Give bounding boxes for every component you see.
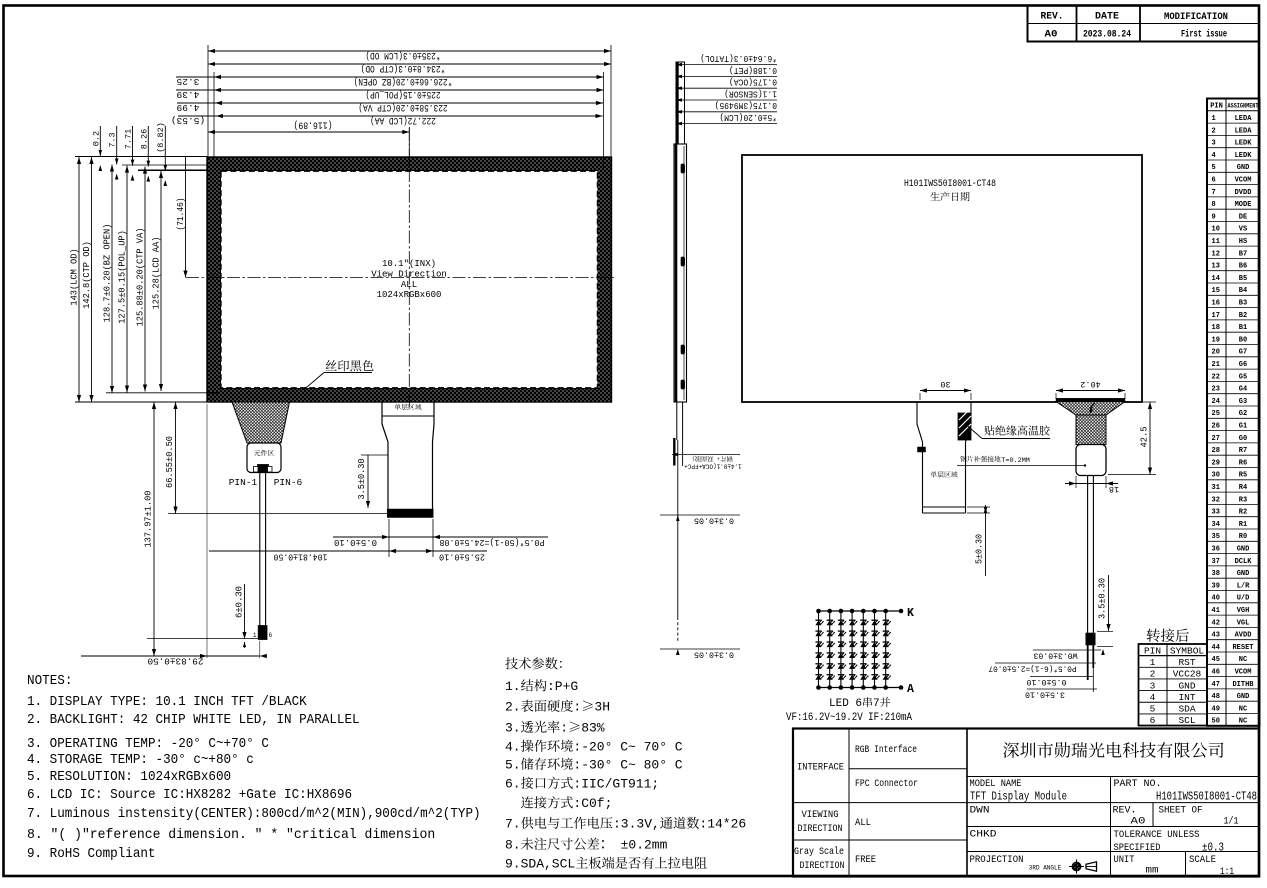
svg-text:3.: 3. (505, 721, 521, 736)
svg-text:B4: B4 (1239, 287, 1247, 295)
svg-text:9. RoHS Compliant: 9. RoHS Compliant (27, 846, 156, 862)
svg-text:NC: NC (1239, 656, 1247, 664)
svg-text:*6.64±0.3(TATOL): *6.64±0.3(TATOL) (700, 53, 777, 63)
svg-text:1/1: 1/1 (1224, 816, 1239, 828)
svg-text:： ±0.2mm: ： ±0.2mm (600, 838, 668, 853)
svg-text:DIRECTION: DIRECTION (800, 860, 845, 872)
svg-text::-20° C~ 70° C: :-20° C~ 70° C (573, 740, 682, 755)
svg-text:*226.66±0.20(BZ OPEN): *226.66±0.20(BZ OPEN) (354, 75, 453, 87)
svg-text:R6: R6 (1239, 459, 1247, 467)
svg-text:LEDA: LEDA (1235, 127, 1253, 135)
svg-text:*235±0.3(LCM OD): *235±0.3(LCM OD) (365, 49, 440, 61)
svg-text:40: 40 (1212, 595, 1220, 603)
svg-text:G4: G4 (1239, 386, 1247, 394)
svg-text:RESET: RESET (1232, 644, 1253, 652)
svg-text:G7: G7 (1239, 349, 1247, 357)
svg-text:6. LCD IC: Source IC:HX8282 +G: 6. LCD IC: Source IC:HX8282 +Gate IC:HX8… (27, 787, 352, 803)
svg-text:27: 27 (1212, 435, 1220, 443)
svg-text:1:1: 1:1 (1220, 866, 1234, 878)
svg-text:0.188(PET): 0.188(PET) (729, 65, 777, 75)
svg-text:1. DISPLAY TYPE: 10.1 INCH TFT: 1. DISPLAY TYPE: 10.1 INCH TFT /BLACK (27, 694, 307, 710)
svg-text:3.5±0.10: 3.5±0.10 (1025, 689, 1065, 699)
svg-text:125.28(LCD AA): 125.28(LCD AA) (150, 237, 161, 310)
svg-text:3.25: 3.25 (176, 76, 199, 87)
svg-text:43: 43 (1212, 632, 1220, 640)
svg-text:3. OPERATING TEMP: -20° C~+70°: 3. OPERATING TEMP: -20° C~+70° C (27, 736, 269, 752)
svg-text:K: K (907, 607, 914, 620)
svg-text:R1: R1 (1239, 521, 1247, 529)
svg-text:A0: A0 (1131, 816, 1146, 828)
svg-text:66.55±0.50: 66.55±0.50 (164, 436, 175, 488)
svg-text::-30° C~ 80° C: :-30° C~ 80° C (573, 758, 682, 773)
svg-text:7.71: 7.71 (123, 129, 133, 149)
svg-text:RGB Interface: RGB Interface (855, 744, 917, 756)
svg-text:LEDK: LEDK (1235, 152, 1253, 160)
svg-text:125.88±0.20(CTP VA): 125.88±0.20(CTP VA) (134, 228, 145, 327)
svg-text:4.39: 4.39 (176, 89, 199, 100)
svg-text:29: 29 (1212, 459, 1220, 467)
svg-text:(116.89): (116.89) (294, 119, 333, 131)
svg-text:6±0.30: 6±0.30 (233, 586, 244, 618)
svg-text:HS: HS (1239, 238, 1247, 246)
svg-text:R3: R3 (1239, 496, 1247, 504)
svg-text:L/R: L/R (1237, 582, 1250, 590)
svg-text:127.5±0.15(POL_UP): 127.5±0.15(POL_UP) (116, 230, 127, 324)
svg-text:FREE: FREE (855, 854, 876, 866)
svg-text:GND: GND (1237, 546, 1250, 554)
svg-text:NC: NC (1239, 705, 1247, 713)
svg-text:7.: 7. (505, 817, 521, 832)
svg-text:SDA: SDA (1178, 704, 1195, 715)
svg-text:G3: G3 (1239, 398, 1247, 406)
svg-text:LED 6: LED 6 (829, 698, 862, 710)
svg-text:225±0.15(POL_UP): 225±0.15(POL_UP) (365, 88, 440, 100)
svg-text:GND: GND (1237, 693, 1250, 701)
svg-text:DITHB: DITHB (1232, 681, 1254, 689)
svg-text:REV.: REV. (1041, 12, 1064, 23)
svg-text:SHEET OF: SHEET OF (1159, 805, 1203, 817)
svg-text:18: 18 (1109, 484, 1119, 494)
svg-text:PROJECTION: PROJECTION (970, 854, 1024, 866)
svg-text:ALL: ALL (855, 817, 871, 829)
svg-text:1.1(SENSOR): 1.1(SENSOR) (724, 88, 777, 98)
svg-text:PIN: PIN (1144, 645, 1161, 656)
svg-text:35: 35 (1212, 533, 1220, 541)
svg-text:R4: R4 (1239, 484, 1247, 492)
svg-text:DCLK: DCLK (1235, 558, 1253, 566)
svg-text:First issue: First issue (1181, 29, 1227, 41)
svg-text:PIN-6: PIN-6 (274, 477, 303, 488)
svg-text:7. Luminous instensity(CENTER): 7. Luminous instensity(CENTER):800cd/m^2… (27, 806, 481, 822)
svg-text:DATE: DATE (1095, 12, 1119, 23)
svg-text:10.1"(INX): 10.1"(INX) (382, 259, 436, 269)
svg-text:PART NO.: PART NO. (1114, 778, 1162, 790)
svg-text:143(LCM OD): 143(LCM OD) (68, 248, 79, 305)
svg-text:DVDD: DVDD (1235, 189, 1252, 197)
svg-text:B6: B6 (1239, 263, 1247, 271)
svg-text:SYMBOL: SYMBOL (1170, 645, 1205, 656)
svg-text:37: 37 (1212, 558, 1220, 566)
svg-text:FPC Connector: FPC Connector (855, 778, 918, 790)
svg-text:R0: R0 (1239, 533, 1247, 541)
svg-text:29.83±0.50: 29.83±0.50 (148, 655, 204, 665)
svg-text:R5: R5 (1239, 472, 1247, 480)
svg-text:45: 45 (1212, 656, 1220, 664)
svg-text:VF:16.2V~19.2V IF:210mA: VF:16.2V~19.2V IF:210mA (786, 712, 912, 724)
svg-text:MODEL NAME: MODEL NAME (970, 778, 1022, 790)
svg-text:39: 39 (1212, 582, 1220, 590)
svg-text:30: 30 (1212, 472, 1220, 480)
svg-text:2. BACKLIGHT: 42 CHIP WHITE LE: 2. BACKLIGHT: 42 CHIP WHITE LED, IN PARA… (27, 712, 360, 728)
svg-text:38: 38 (1212, 570, 1220, 578)
svg-text:16: 16 (1212, 300, 1220, 308)
svg-text:26: 26 (1212, 423, 1220, 431)
svg-text:UNIT: UNIT (1114, 854, 1135, 866)
svg-text:mm: mm (1146, 865, 1159, 877)
svg-text:LEDK: LEDK (1235, 140, 1253, 148)
svg-text:47: 47 (1212, 681, 1220, 689)
svg-text:42: 42 (1212, 619, 1220, 627)
svg-text:222.72(LCD AA): 222.72(LCD AA) (370, 114, 436, 126)
svg-text:(5.53): (5.53) (171, 115, 205, 126)
svg-text:SCALE: SCALE (1189, 854, 1216, 866)
svg-text:LEDA: LEDA (1235, 115, 1253, 123)
svg-text:1: 1 (1150, 657, 1156, 668)
svg-text:32: 32 (1212, 496, 1220, 504)
svg-text:10: 10 (1212, 226, 1220, 234)
svg-text:9: 9 (1212, 213, 1216, 221)
svg-text:0.3±0.05: 0.3±0.05 (694, 650, 734, 660)
svg-text:CHKD: CHKD (970, 829, 997, 841)
svg-text::14*26: :14*26 (699, 817, 746, 832)
svg-text:2: 2 (1150, 669, 1156, 680)
svg-text:2.: 2. (505, 700, 521, 715)
svg-text:SCL: SCL (1178, 715, 1195, 726)
svg-text:DE: DE (1239, 213, 1247, 221)
svg-text:31: 31 (1212, 484, 1220, 492)
svg-text:3.5±0.30: 3.5±0.30 (356, 458, 367, 499)
svg-text:T=0.2MM: T=0.2MM (1001, 457, 1030, 465)
svg-text:P0.5*(50-1)=24.5±0.08: P0.5*(50-1)=24.5±0.08 (440, 537, 545, 547)
svg-text:28: 28 (1212, 447, 1220, 455)
svg-text:1.4±0.1(OCA+FPC+: 1.4±0.1(OCA+FPC+ (684, 462, 742, 469)
svg-text:G6: G6 (1239, 361, 1247, 369)
svg-text:0.3±0.05: 0.3±0.05 (694, 516, 734, 526)
svg-text:20: 20 (1212, 349, 1220, 357)
svg-text:View Direction: View Direction (371, 270, 447, 280)
svg-text::: : (560, 721, 568, 736)
svg-text:6.: 6. (505, 777, 521, 792)
svg-text:8.26: 8.26 (139, 129, 149, 149)
svg-text:2: 2 (1212, 127, 1216, 135)
svg-text:B0: B0 (1239, 336, 1247, 344)
svg-text:INT: INT (1178, 692, 1195, 703)
svg-text:0.5±0.10: 0.5±0.10 (1027, 677, 1067, 687)
svg-text:25: 25 (1212, 410, 1220, 418)
svg-text:VGH: VGH (1237, 607, 1250, 615)
svg-text:G1: G1 (1239, 423, 1247, 431)
svg-text:50: 50 (1212, 718, 1220, 726)
svg-text:VCC28: VCC28 (1173, 669, 1202, 680)
svg-text:0.175(3M9495): 0.175(3M9495) (715, 100, 777, 110)
svg-text::IIC/GT911;: :IIC/GT911; (573, 777, 659, 792)
svg-text:B3: B3 (1239, 300, 1247, 308)
svg-text:9.SDA,SCL: 9.SDA,SCL (505, 857, 575, 872)
svg-text:15: 15 (1212, 287, 1220, 295)
svg-text:B5: B5 (1239, 275, 1247, 283)
svg-text:VIEWING: VIEWING (802, 809, 839, 821)
svg-text:5: 5 (1212, 164, 1216, 172)
svg-text:128.7±0.20(BZ OPEN): 128.7±0.20(BZ OPEN) (101, 224, 112, 323)
svg-text:223.58±0.20(CTP VA): 223.58±0.20(CTP VA) (358, 101, 447, 113)
svg-text:SPECIFIED: SPECIFIED (1114, 842, 1161, 854)
svg-text:5. RESOLUTION: 1024xRGBx600: 5. RESOLUTION: 1024xRGBx600 (27, 769, 231, 785)
svg-text:H101IWS50I8001-CT48: H101IWS50I8001-CT48 (1156, 791, 1257, 804)
svg-text:GND: GND (1237, 570, 1250, 578)
svg-text:RST: RST (1178, 657, 1195, 668)
svg-text:INTERFACE: INTERFACE (797, 762, 844, 774)
svg-text:VGL: VGL (1237, 619, 1250, 627)
svg-text:TFT Display Module: TFT Display Module (970, 791, 1067, 804)
svg-text:4. STORAGE TEMP: -30° c~+80° c: 4. STORAGE TEMP: -30° c~+80° c (27, 752, 254, 768)
svg-text:22: 22 (1212, 373, 1220, 381)
svg-text:25.5±0.10: 25.5±0.10 (439, 551, 485, 561)
svg-text:A0: A0 (1045, 30, 1058, 41)
svg-text:142.8(CTP OD): 142.8(CTP OD) (81, 241, 92, 309)
svg-text:46: 46 (1212, 669, 1220, 677)
svg-text:1: 1 (1212, 115, 1216, 123)
svg-text:(71.46): (71.46) (175, 198, 186, 231)
svg-text:VCOM: VCOM (1235, 669, 1252, 677)
svg-text:W0.3±0.03: W0.3±0.03 (1034, 650, 1078, 660)
svg-text:5±0.30: 5±0.30 (973, 534, 984, 564)
svg-text:40.2: 40.2 (1080, 379, 1100, 389)
svg-text:VCOM: VCOM (1235, 177, 1252, 185)
svg-text:0.5±0.10: 0.5±0.10 (334, 537, 377, 547)
svg-text:G2: G2 (1239, 410, 1247, 418)
svg-text:H101IWS50I8001-CT48: H101IWS50I8001-CT48 (904, 178, 996, 190)
svg-text:1: 1 (253, 632, 257, 639)
svg-text:6: 6 (1150, 715, 1156, 726)
svg-text:13: 13 (1212, 263, 1220, 271)
svg-text:PIN: PIN (1210, 103, 1223, 111)
svg-text:104.81±0.50: 104.81±0.50 (274, 551, 328, 561)
svg-text:3RD ANGLE: 3RD ANGLE (1029, 865, 1062, 872)
svg-text:GND: GND (1237, 164, 1250, 172)
svg-text:Gray Scale: Gray Scale (794, 846, 844, 858)
svg-text:7.3: 7.3 (108, 132, 118, 147)
svg-text:3: 3 (1150, 680, 1156, 691)
svg-text:6: 6 (269, 632, 273, 639)
svg-text:B1: B1 (1239, 324, 1247, 332)
svg-text:8: 8 (1212, 201, 1216, 209)
svg-text::3.3V,: :3.3V, (613, 817, 660, 832)
svg-text:48: 48 (1212, 693, 1220, 701)
svg-text:34: 34 (1212, 521, 1220, 529)
svg-text::P+G: :P+G (547, 679, 578, 694)
svg-text:6: 6 (1212, 177, 1216, 185)
svg-text:14: 14 (1212, 275, 1220, 283)
svg-text:4.: 4. (505, 740, 521, 755)
svg-text:B7: B7 (1239, 250, 1247, 258)
svg-text:4.99: 4.99 (176, 102, 199, 113)
svg-text:17: 17 (1212, 312, 1220, 320)
svg-text:G5: G5 (1239, 373, 1247, 381)
svg-text:7: 7 (1212, 189, 1216, 197)
svg-text:MODE: MODE (1235, 201, 1252, 209)
svg-text:8. "( )"reference dimension. ": 8. "( )"reference dimension. " * "critic… (27, 827, 435, 843)
svg-text:A: A (907, 683, 914, 696)
svg-text:44: 44 (1212, 644, 1220, 652)
svg-text:5: 5 (1150, 704, 1156, 715)
svg-text:23: 23 (1212, 386, 1220, 394)
svg-text::: : (573, 700, 581, 715)
svg-text:30: 30 (940, 379, 950, 389)
svg-text:AVDD: AVDD (1235, 632, 1252, 640)
svg-text:36: 36 (1212, 546, 1220, 554)
svg-text:1024xRGBx600: 1024xRGBx600 (377, 290, 442, 300)
svg-text:DIRECTION: DIRECTION (798, 823, 843, 835)
svg-text:21: 21 (1212, 361, 1220, 369)
svg-text:49: 49 (1212, 705, 1220, 713)
svg-text:11: 11 (1212, 238, 1220, 246)
svg-text:B2: B2 (1239, 312, 1247, 320)
svg-text:PIN-1: PIN-1 (229, 477, 258, 488)
svg-text:*5±0.20(LCM): *5±0.20(LCM) (719, 112, 777, 122)
svg-text:83%: 83% (581, 721, 605, 736)
svg-text:7: 7 (873, 698, 880, 710)
svg-text:2023.08.24: 2023.08.24 (1083, 29, 1131, 41)
svg-text:42.5: 42.5 (1138, 426, 1149, 447)
svg-text:0.175(OCA): 0.175(OCA) (729, 77, 777, 87)
svg-text:4: 4 (1150, 692, 1156, 703)
svg-text:41: 41 (1212, 607, 1220, 615)
svg-text:*234.8±0.3(CTP OD): *234.8±0.3(CTP OD) (361, 62, 446, 74)
svg-text:(8.82): (8.82) (156, 122, 166, 153)
svg-text:GND: GND (1178, 680, 1195, 691)
svg-text:19: 19 (1212, 336, 1220, 344)
svg-text:5.: 5. (505, 758, 521, 773)
svg-text:0.2: 0.2 (92, 131, 102, 146)
svg-text:33: 33 (1212, 509, 1220, 517)
svg-text:MODIFICATION: MODIFICATION (1164, 12, 1228, 23)
svg-text:24: 24 (1212, 398, 1220, 406)
svg-text:NC: NC (1239, 718, 1247, 726)
svg-text:TOLERANCE UNLESS: TOLERANCE UNLESS (1114, 829, 1200, 841)
svg-text:3.5±0.30: 3.5±0.30 (1096, 578, 1107, 619)
svg-text:ASSIGNMENT: ASSIGNMENT (1228, 103, 1259, 110)
svg-text:1.: 1. (505, 679, 521, 694)
svg-text:4: 4 (1212, 152, 1216, 160)
svg-text:U/D: U/D (1237, 595, 1250, 603)
svg-text:ALL: ALL (401, 280, 417, 290)
svg-text:137.97±1.00: 137.97±1.00 (142, 490, 153, 547)
svg-text:3: 3 (1212, 140, 1216, 148)
svg-text:VS: VS (1239, 226, 1247, 234)
svg-text:R7: R7 (1239, 447, 1247, 455)
svg-text:NOTES:: NOTES: (27, 673, 72, 689)
svg-text:G0: G0 (1239, 435, 1247, 443)
svg-text:12: 12 (1212, 250, 1220, 258)
svg-text:3H: 3H (594, 700, 610, 715)
svg-text:R2: R2 (1239, 509, 1247, 517)
svg-text:±0.3: ±0.3 (1202, 842, 1224, 855)
svg-text::C0f;: :C0f; (573, 796, 612, 811)
svg-text:18: 18 (1212, 324, 1220, 332)
svg-text:8.: 8. (505, 838, 521, 853)
svg-text:DWN: DWN (970, 805, 990, 817)
svg-text:P0.5*(6-1)=2.5±0.07: P0.5*(6-1)=2.5±0.07 (989, 663, 1077, 673)
